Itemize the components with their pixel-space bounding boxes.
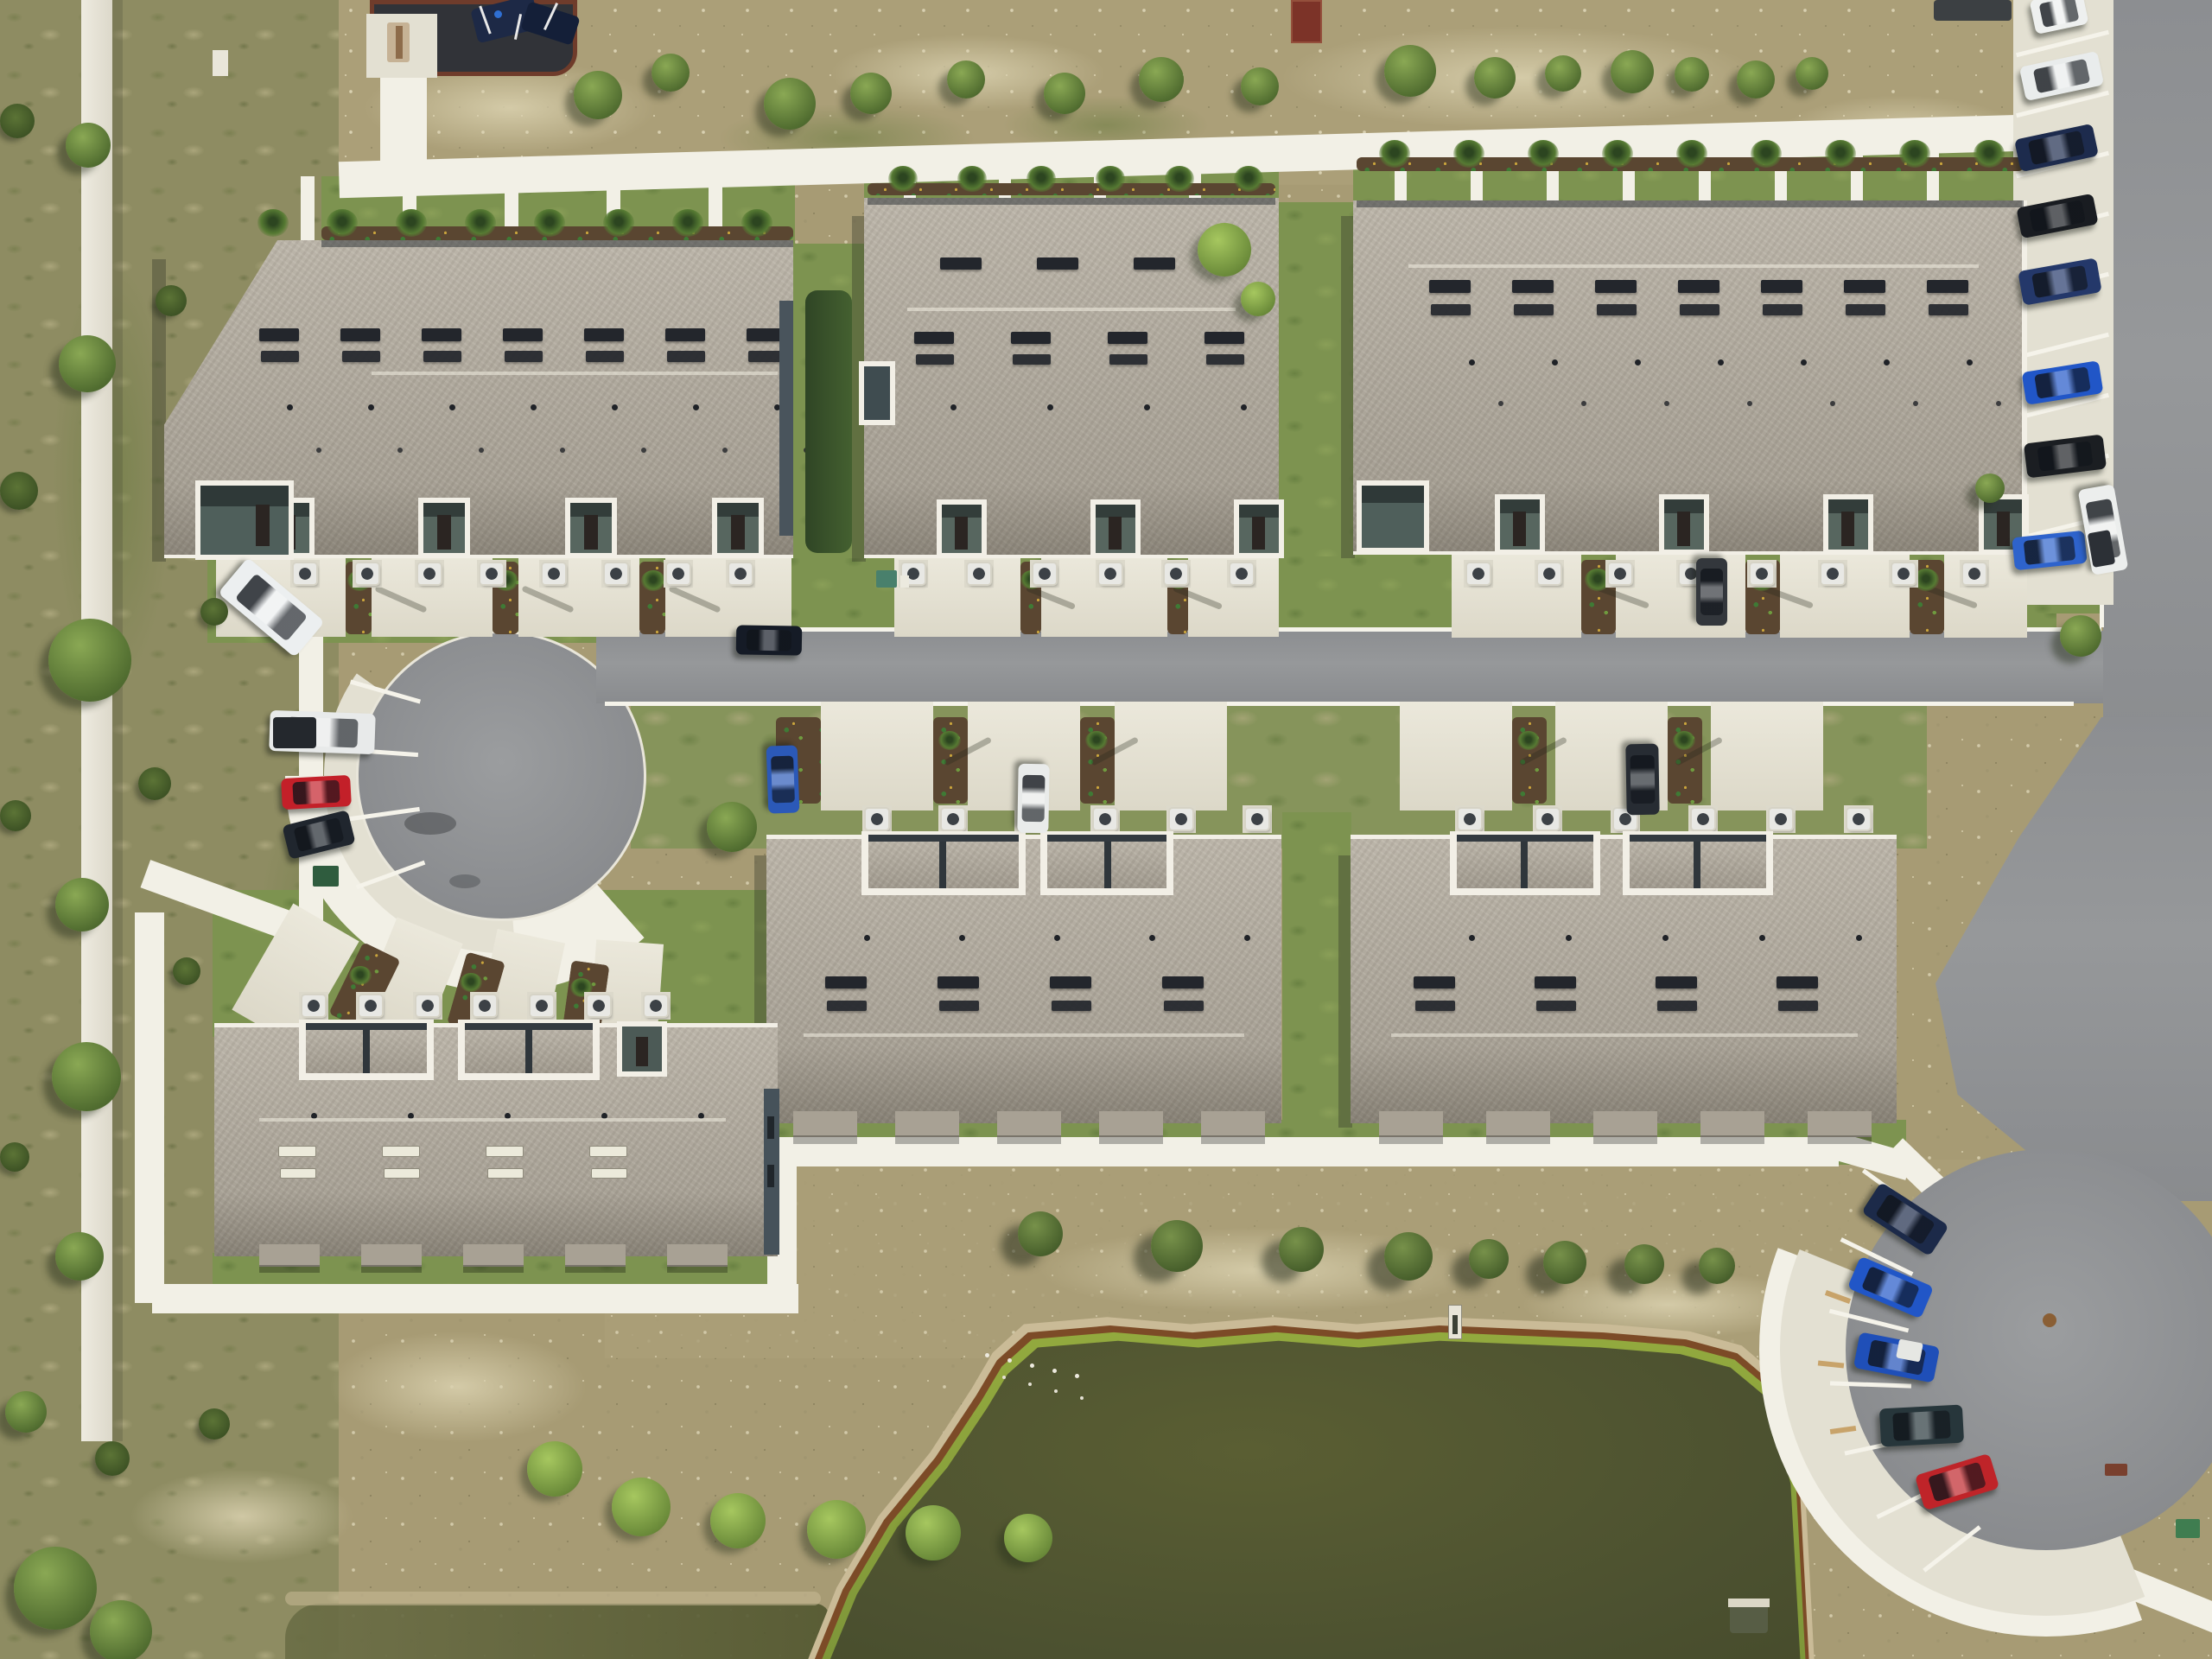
roof-pipe <box>1635 359 1641 365</box>
bench-bulb <box>2105 1464 2127 1476</box>
porch-door <box>1997 512 2010 546</box>
car-blue-driveway-d <box>766 745 800 813</box>
roof-vent <box>259 328 299 341</box>
courtyard-roof <box>868 838 939 888</box>
tree <box>1044 73 1085 114</box>
sidewalk-f-south <box>152 1284 798 1313</box>
hedge-gap-ab <box>805 290 852 553</box>
palm-row-c <box>1899 140 1930 168</box>
utility-box-green <box>313 866 339 887</box>
tree <box>1611 50 1654 93</box>
car-navy-on-road <box>736 625 803 655</box>
shrub <box>0 104 35 138</box>
ac-unit <box>1692 809 1714 829</box>
roof-pipe <box>1662 935 1669 941</box>
roof-vent <box>1206 354 1244 365</box>
palm-row-a <box>672 209 703 237</box>
porch-door <box>955 517 968 550</box>
ac-unit <box>1467 563 1490 584</box>
courtyard-roof <box>1111 838 1166 888</box>
driveway-d <box>1115 702 1227 810</box>
tree <box>1139 57 1184 102</box>
roof-pipe <box>1047 404 1053 410</box>
shrub <box>0 472 38 510</box>
roof-pipe <box>1581 401 1586 406</box>
roof-vent <box>1108 332 1147 344</box>
roof-vent <box>1052 1001 1091 1011</box>
roof-vent <box>261 351 299 362</box>
roof-vent <box>422 328 461 341</box>
roof-pipe <box>1244 935 1250 941</box>
tree-shore <box>1469 1239 1509 1279</box>
ac-unit <box>418 563 441 584</box>
palm-row-b <box>1234 166 1263 192</box>
palm-row-b <box>957 166 987 192</box>
roof-vent <box>916 354 954 365</box>
back-patio <box>1700 1111 1764 1137</box>
back-patio <box>667 1244 728 1267</box>
courtyard-roof <box>1528 838 1593 888</box>
palm-row-a <box>257 209 289 237</box>
mulch-bar-b <box>868 183 1275 195</box>
roof-pipe <box>722 448 728 453</box>
roof-pipe <box>1054 935 1060 941</box>
tree-shore <box>1279 1227 1324 1272</box>
back-patio-shadow <box>1099 1135 1163 1144</box>
palm-row-b <box>1165 166 1194 192</box>
playground-toy <box>494 10 502 18</box>
roof-pipe <box>1469 935 1475 941</box>
roof-vent <box>1514 304 1554 315</box>
palm-row-c <box>1676 140 1707 168</box>
palm-row-a <box>396 209 427 237</box>
ac-unit <box>1099 563 1122 584</box>
roof-vent <box>1844 280 1885 293</box>
roof-vent <box>1656 976 1697 988</box>
ac-unit <box>1165 563 1187 584</box>
roof-vent <box>280 1168 316 1179</box>
sand-patch <box>328 1331 588 1443</box>
courtyard-roof <box>1457 838 1521 888</box>
tree-bright <box>710 1493 766 1548</box>
car-white-driveway-d <box>1017 764 1049 834</box>
ac-unit <box>1230 563 1253 584</box>
ac-unit <box>1963 563 1986 584</box>
back-patio <box>1593 1111 1657 1137</box>
roof-vent <box>1761 280 1802 293</box>
car-red <box>281 775 352 810</box>
courtyard-seam <box>306 1023 427 1030</box>
building-e-ridge <box>1391 1033 1858 1037</box>
tree-bright <box>1004 1514 1052 1562</box>
courtyard-roof <box>1630 838 1694 888</box>
roof-vent <box>1657 1001 1697 1011</box>
tree <box>14 1547 97 1630</box>
tree-bright <box>527 1441 582 1497</box>
roof-vent <box>939 1001 979 1011</box>
courtyard-seam <box>1630 835 1766 842</box>
ac-unit <box>1170 809 1192 829</box>
back-patio <box>361 1244 422 1267</box>
utility-box-white <box>900 575 909 588</box>
roof-pipe <box>368 404 374 410</box>
roof-pipe <box>864 935 870 941</box>
palm-row-c <box>1379 140 1410 168</box>
ac-unit <box>1246 809 1268 829</box>
roof-vent <box>382 1146 420 1157</box>
roof-vent <box>665 328 705 341</box>
roof-vent <box>340 328 380 341</box>
courtyard-seam <box>465 1023 593 1030</box>
building-f-east-window <box>767 1116 774 1139</box>
roof-vent <box>825 976 867 988</box>
ac-unit <box>416 995 439 1016</box>
porch-door <box>584 515 598 550</box>
aerial-photo-stage <box>0 0 2212 1659</box>
roof-pipe <box>1856 935 1862 941</box>
shrub <box>156 285 187 316</box>
porch-shade <box>1096 505 1135 518</box>
roof-vent <box>940 257 982 270</box>
ac-unit <box>1751 563 1773 584</box>
tree-bright <box>906 1505 961 1560</box>
courtyard-seam <box>939 838 946 888</box>
palm-front <box>1673 731 1695 750</box>
back-patio <box>793 1111 857 1137</box>
tree-wall <box>48 619 131 702</box>
courtyard-seam <box>1521 838 1528 888</box>
roof-vent <box>1134 257 1175 270</box>
tree-shore <box>1699 1248 1735 1284</box>
trash-bins <box>1934 0 2012 21</box>
ac-unit <box>1821 563 1844 584</box>
shrub <box>95 1441 130 1476</box>
roof-vent <box>1415 1001 1455 1011</box>
driveway-e <box>1711 702 1823 810</box>
roof-vent <box>384 1168 420 1179</box>
ac-unit <box>1459 809 1481 829</box>
park-bench-back <box>396 26 403 59</box>
tree-bright <box>807 1500 866 1559</box>
ac-unit <box>1609 563 1631 584</box>
tree <box>1675 57 1709 92</box>
tree <box>1545 55 1581 92</box>
tree <box>5 1391 47 1433</box>
back-patio-shadow <box>997 1135 1061 1144</box>
pond-outfall-slot <box>1452 1315 1458 1334</box>
pond-marsh-sand <box>285 1592 821 1605</box>
back-patio-shadow <box>1379 1135 1443 1144</box>
building-c-back-seam <box>1357 200 2024 207</box>
roof-pipe <box>531 404 537 410</box>
roof-vent <box>914 332 954 344</box>
roof-vent <box>589 1146 627 1157</box>
roof-pipe <box>1718 359 1724 365</box>
courtyard-roof <box>370 1027 427 1073</box>
back-patio-shadow <box>1700 1135 1764 1144</box>
ac-unit <box>531 995 553 1016</box>
car-gray-driveway-c <box>1696 558 1727 626</box>
car-dark-driveway-e <box>1625 744 1659 816</box>
roof-pipe <box>397 448 403 453</box>
roof-vent <box>938 976 979 988</box>
courtyard-roof <box>306 1027 363 1073</box>
back-patio-shadow <box>1593 1135 1657 1144</box>
roof-vent <box>1777 976 1818 988</box>
roof-vent <box>586 351 624 362</box>
pond-foam-dot <box>1007 1358 1012 1363</box>
courtyard-roof <box>946 838 1019 888</box>
tree-shore <box>1018 1211 1063 1256</box>
building-a-east-wall <box>779 301 793 536</box>
corner-porch-door <box>256 505 270 546</box>
roof-vent <box>1429 280 1471 293</box>
roof-vent <box>827 1001 867 1011</box>
tree-wall <box>59 335 116 392</box>
ac-unit <box>474 995 496 1016</box>
tree <box>1474 57 1516 99</box>
roof-vent <box>503 328 543 341</box>
courtyard-roof <box>465 1027 525 1073</box>
ac-unit <box>588 995 610 1016</box>
pond-foam-dot <box>985 1353 989 1357</box>
roof-pipe <box>1149 935 1155 941</box>
shrub <box>138 767 171 800</box>
porch-door <box>636 1037 648 1066</box>
pond-foam-dot <box>1030 1363 1034 1368</box>
tree <box>707 802 757 852</box>
ac-unit <box>866 809 888 829</box>
tree <box>1975 474 2005 503</box>
building-b-eave <box>864 555 1279 558</box>
porch-door <box>1841 512 1854 546</box>
building-d-ridge <box>804 1033 1244 1037</box>
tree <box>1241 67 1279 105</box>
roof-vent <box>487 1168 524 1179</box>
building-b-left-porch <box>864 366 890 420</box>
ac-unit <box>356 563 378 584</box>
back-patio <box>1379 1111 1443 1137</box>
ac-unit <box>667 563 690 584</box>
roof-vent <box>1050 976 1091 988</box>
roof-vent <box>1414 976 1455 988</box>
tree <box>1384 45 1436 97</box>
roof-pipe <box>1566 935 1572 941</box>
courtyard-seam <box>1104 838 1111 888</box>
building-b-front-shade <box>864 484 1279 555</box>
roof-pipe <box>1498 401 1503 406</box>
courtyard-roof <box>1700 838 1766 888</box>
back-patio <box>895 1111 959 1137</box>
pond-marsh-strip <box>285 1604 829 1659</box>
asphalt-stain <box>404 812 456 835</box>
roof-vent <box>1678 280 1719 293</box>
back-patio <box>259 1244 320 1267</box>
roof-vent <box>1162 976 1204 988</box>
palm-row-b <box>1027 166 1056 192</box>
courtyard-roof <box>1047 838 1104 888</box>
porch-shade <box>942 505 982 518</box>
sidewalk-f-west <box>135 912 164 1303</box>
tree-bright-bush <box>1198 223 1251 276</box>
building-a-ridge <box>372 372 778 375</box>
roof-pipe <box>1996 401 2001 406</box>
pond-foam-dot <box>1080 1396 1084 1400</box>
ac-unit <box>480 563 503 584</box>
ac-unit <box>1033 563 1056 584</box>
back-patio-shadow <box>361 1265 422 1273</box>
palm-row-c <box>1751 140 1782 168</box>
back-patio-shadow <box>463 1265 524 1273</box>
sidewalk-stub-a <box>301 176 315 244</box>
roof-pipe <box>1747 401 1752 406</box>
building-f-east-window <box>767 1165 774 1187</box>
palm-row-c <box>1602 140 1633 168</box>
tree-shore <box>1624 1244 1664 1284</box>
courtyard-seam <box>525 1027 532 1073</box>
tree <box>850 73 892 114</box>
roof-vent <box>1011 332 1051 344</box>
ac-unit <box>942 809 964 829</box>
roof-vent <box>1597 304 1637 315</box>
shrub <box>199 1408 230 1440</box>
palm-row-c <box>1453 140 1484 168</box>
tree-wall <box>55 878 109 931</box>
roof-vent <box>505 351 543 362</box>
tree <box>947 60 985 99</box>
ac-unit <box>1538 563 1560 584</box>
roof-pipe <box>693 404 699 410</box>
back-patio <box>463 1244 524 1267</box>
building-c-ridge <box>1408 264 1979 268</box>
pond-foam-dot <box>1052 1369 1057 1373</box>
roof-vent <box>1763 304 1802 315</box>
roof-vent <box>486 1146 524 1157</box>
street-right <box>2103 0 2212 795</box>
tree <box>764 78 816 130</box>
building-f-ridge <box>259 1118 726 1122</box>
roof-vent <box>1595 280 1637 293</box>
porch-door <box>1677 512 1690 546</box>
palm-row-a <box>465 209 496 237</box>
back-patio-shadow <box>1486 1135 1550 1144</box>
utility-pad <box>213 50 228 76</box>
roof-vent <box>342 351 380 362</box>
roof-pipe <box>1241 404 1247 410</box>
ac-unit <box>1536 809 1559 829</box>
palm-row-a <box>534 209 565 237</box>
corner-porch-shade <box>1362 486 1424 503</box>
road-main <box>596 631 2110 703</box>
roof-vent <box>1846 304 1885 315</box>
roof-pipe <box>316 448 321 453</box>
driveway-e <box>1400 702 1512 810</box>
roof-pipe <box>1884 359 1890 365</box>
porch-door <box>1513 512 1526 546</box>
back-patio <box>1099 1111 1163 1137</box>
roof-pipe <box>612 404 618 410</box>
building-a-back-seam <box>321 240 793 247</box>
palm-row-c <box>1825 140 1856 168</box>
tree-shore <box>1384 1232 1433 1281</box>
building-b-back-seam <box>868 198 1275 205</box>
palm-row-b <box>888 166 918 192</box>
pond-foam-dot <box>1054 1389 1058 1393</box>
roof-vent <box>667 351 705 362</box>
back-patio-shadow <box>1808 1135 1872 1144</box>
roof-pipe <box>287 404 293 410</box>
roof-vent <box>1929 304 1968 315</box>
roof-vent <box>1109 354 1147 365</box>
roof-pipe <box>641 448 646 453</box>
pickup-bed-cover <box>273 717 316 748</box>
tree <box>90 1600 152 1659</box>
roof-pipe <box>560 448 565 453</box>
ac-unit <box>605 563 627 584</box>
boundary-wall-shadow <box>112 0 123 1441</box>
tree-wall <box>66 123 111 168</box>
roof-pipe <box>1552 359 1558 365</box>
roof-vent <box>1512 280 1554 293</box>
tree <box>574 71 622 119</box>
ac-unit <box>968 563 990 584</box>
courtyard-seam <box>1457 835 1593 842</box>
palm-row-b <box>1096 166 1125 192</box>
ac-unit <box>729 563 752 584</box>
roof-vent <box>1680 304 1719 315</box>
ac-unit <box>294 563 316 584</box>
courtyard-seam <box>868 835 1019 842</box>
pond-foam-dot <box>1028 1382 1032 1386</box>
back-patio <box>997 1111 1061 1137</box>
tree-wall <box>52 1042 121 1111</box>
maroon-box <box>1291 0 1322 43</box>
roof-vent <box>1535 976 1576 988</box>
tree <box>2060 615 2101 657</box>
palm-row-a <box>603 209 634 237</box>
back-patio-shadow <box>565 1265 626 1273</box>
roof-vent <box>1536 1001 1576 1011</box>
roof-pipe <box>479 448 484 453</box>
back-patio <box>565 1244 626 1267</box>
shrub <box>0 800 31 831</box>
ac-unit <box>302 995 325 1016</box>
courtyard-seam <box>1047 835 1166 842</box>
palm-front <box>641 570 665 591</box>
tree <box>1796 57 1828 90</box>
back-patio <box>1486 1111 1550 1137</box>
corner-porch-shade <box>200 486 289 506</box>
roof-vent <box>1013 354 1051 365</box>
roof-vent <box>1164 1001 1204 1011</box>
roof-pipe <box>449 404 455 410</box>
palm-row-a <box>741 209 772 237</box>
palm-row-a <box>327 209 358 237</box>
roof-pipe <box>959 935 965 941</box>
utility-box-teal <box>876 570 897 588</box>
car-teal-suv-bulb <box>1879 1405 1964 1447</box>
tree-shore <box>1151 1220 1203 1272</box>
courtyard-seam <box>1694 838 1700 888</box>
roof-pipe <box>1759 935 1765 941</box>
roof-pipe <box>950 404 957 410</box>
tree-shore <box>1543 1241 1586 1284</box>
roof-pipe <box>1801 359 1807 365</box>
ac-unit <box>359 995 382 1016</box>
back-patio <box>1201 1111 1265 1137</box>
palm-front <box>349 966 372 985</box>
shrub <box>200 598 228 626</box>
